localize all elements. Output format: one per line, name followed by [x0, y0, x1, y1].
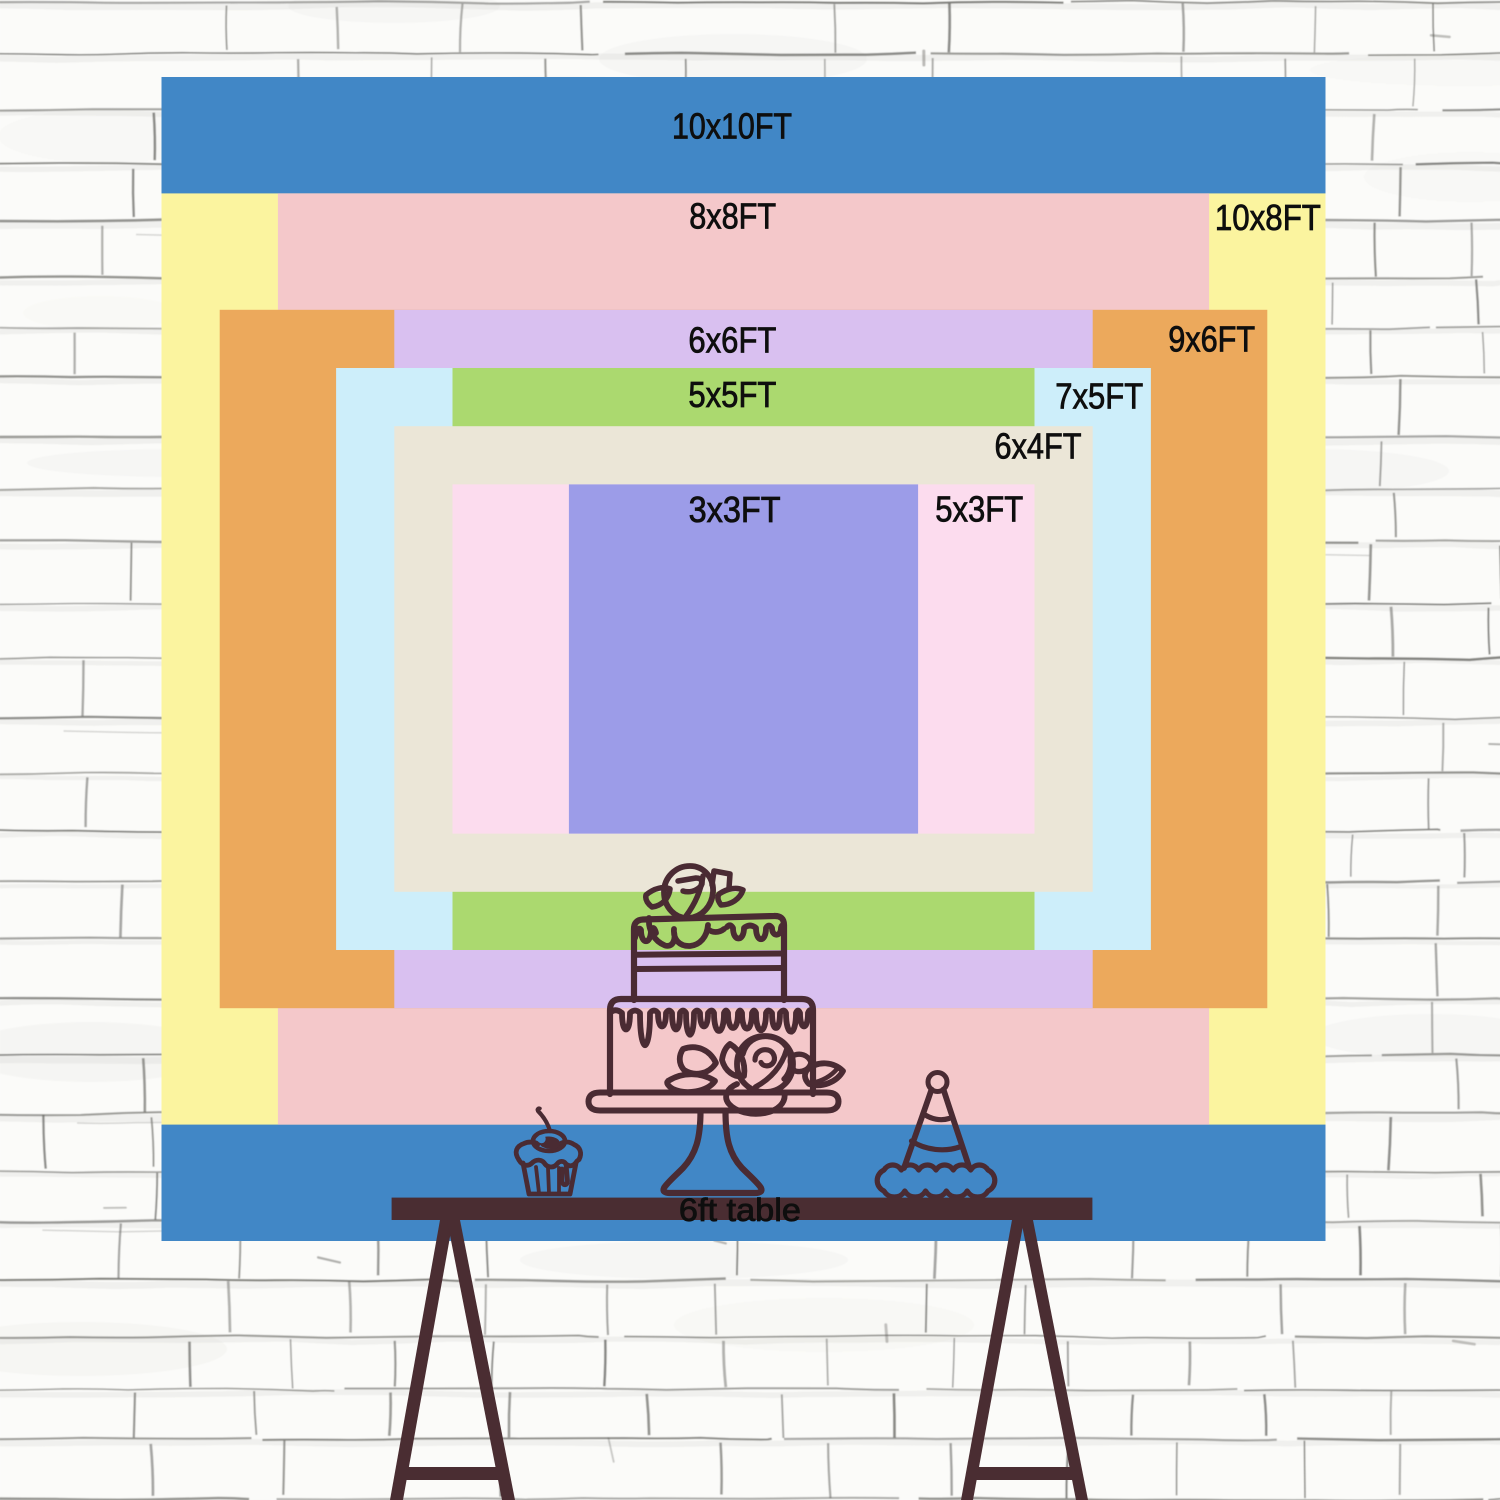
svg-text:5x5FT: 5x5FT — [688, 374, 776, 415]
svg-text:10x10FT: 10x10FT — [672, 105, 792, 146]
svg-text:6x4FT: 6x4FT — [995, 425, 1082, 466]
svg-text:7x5FT: 7x5FT — [1055, 375, 1143, 416]
svg-text:5x3FT: 5x3FT — [935, 489, 1023, 530]
svg-text:6ft table: 6ft table — [679, 1192, 801, 1228]
svg-text:3x3FT: 3x3FT — [689, 489, 781, 530]
svg-text:6x6FT: 6x6FT — [688, 320, 776, 361]
svg-text:10x8FT: 10x8FT — [1215, 197, 1321, 238]
svg-text:8x8FT: 8x8FT — [689, 196, 776, 237]
svg-text:9x6FT: 9x6FT — [1168, 319, 1255, 360]
